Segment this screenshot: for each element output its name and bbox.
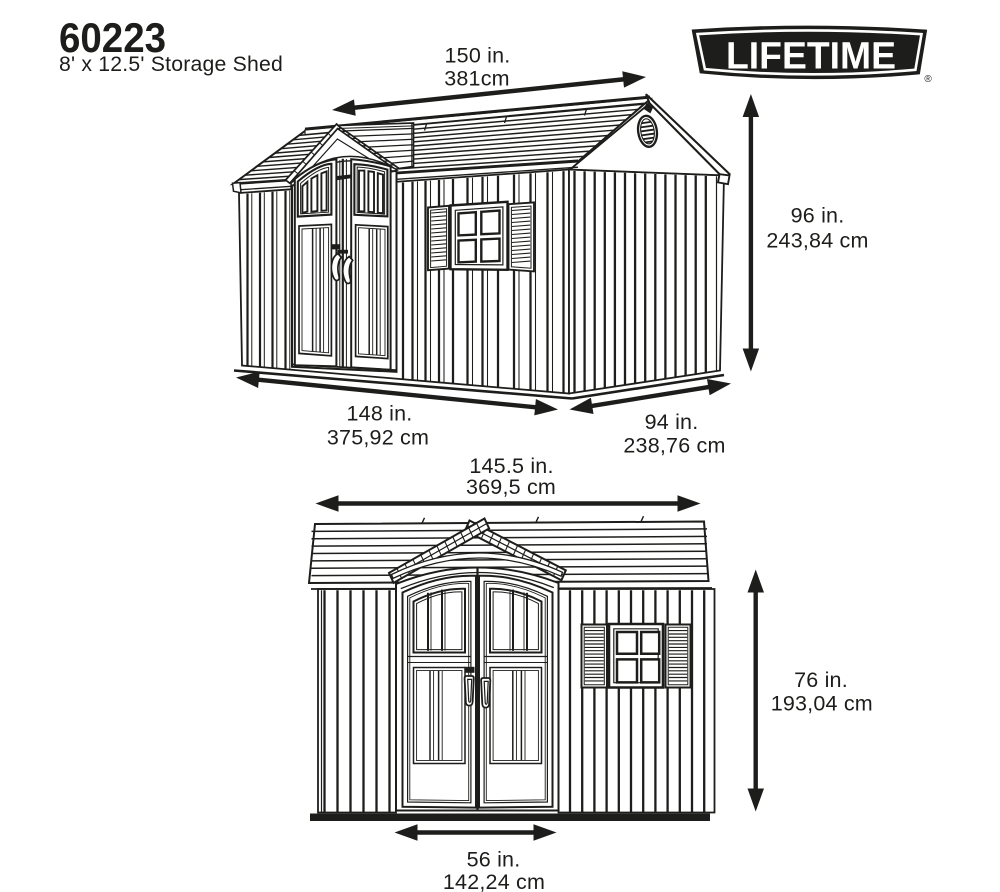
svg-text:142,24 cm: 142,24 cm bbox=[443, 870, 545, 892]
svg-text:96 in.: 96 in. bbox=[791, 204, 845, 228]
svg-text:8' x 12.5' Storage Shed: 8' x 12.5' Storage Shed bbox=[59, 52, 283, 76]
svg-text:369,5 cm: 369,5 cm bbox=[466, 475, 556, 499]
svg-text:76 in.: 76 in. bbox=[794, 668, 848, 692]
svg-text:148 in.: 148 in. bbox=[347, 402, 413, 426]
svg-text:94 in.: 94 in. bbox=[645, 410, 699, 434]
svg-text:381cm: 381cm bbox=[444, 67, 510, 91]
svg-text:®: ® bbox=[924, 74, 932, 85]
svg-text:LIFETIME: LIFETIME bbox=[726, 36, 896, 78]
svg-text:243,84 cm: 243,84 cm bbox=[766, 229, 868, 253]
svg-text:193,04 cm: 193,04 cm bbox=[771, 692, 873, 716]
svg-text:375,92 cm: 375,92 cm bbox=[327, 426, 429, 450]
svg-text:150 in.: 150 in. bbox=[445, 44, 511, 68]
svg-text:238,76 cm: 238,76 cm bbox=[623, 434, 725, 458]
svg-text:56 in.: 56 in. bbox=[467, 848, 521, 872]
